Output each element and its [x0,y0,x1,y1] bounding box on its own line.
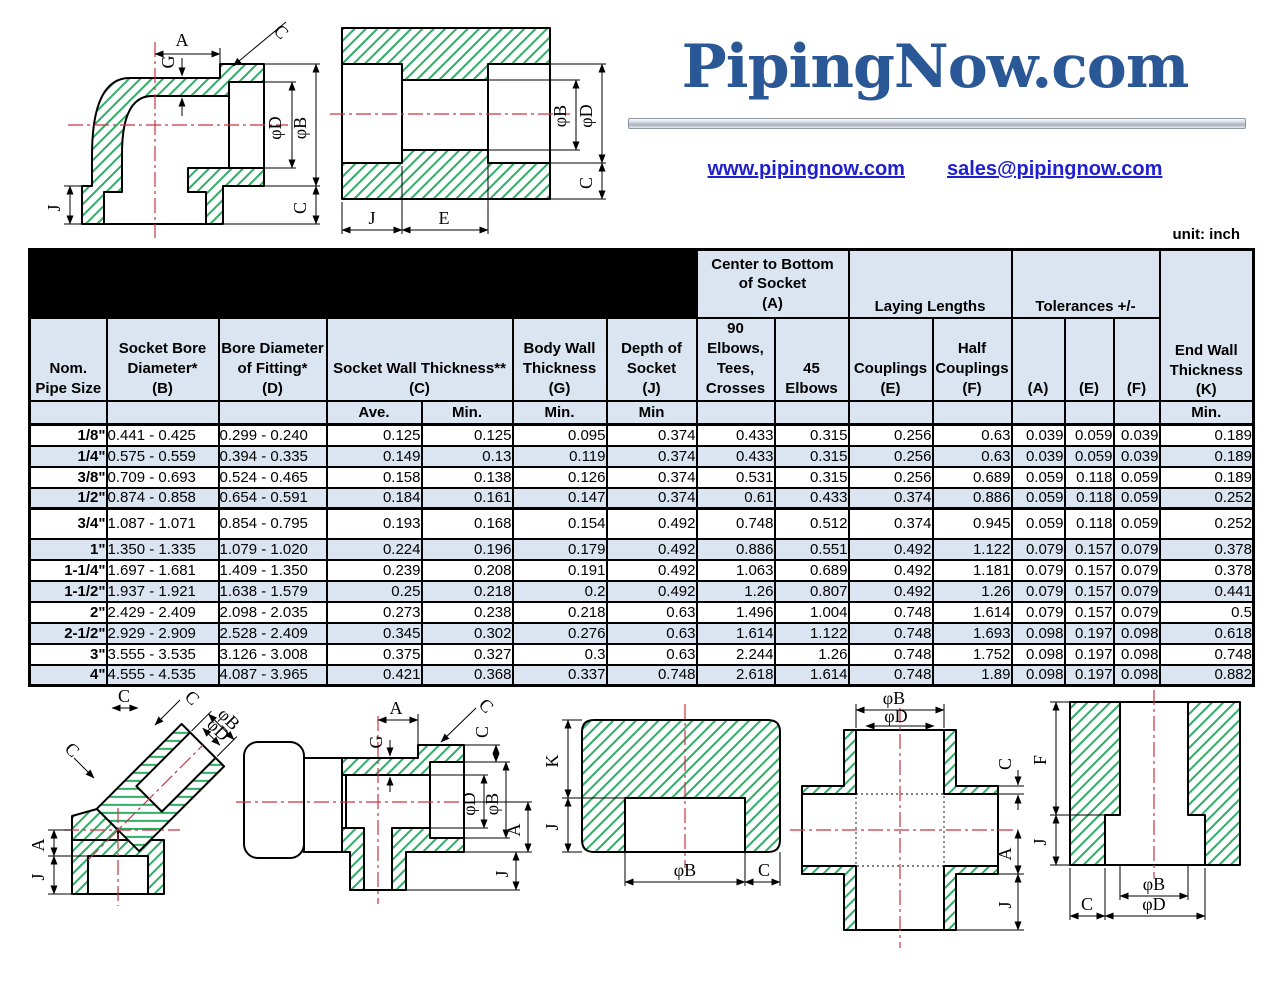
table-cell: 0.184 [327,488,422,509]
subheader-cell [1114,401,1160,425]
table-cell: 1.122 [775,623,849,644]
dim-label: C [118,690,130,706]
table-cell: 0.189 [1160,467,1254,488]
table-cell: 0.098 [1114,644,1160,665]
table-cell: 1.350 - 1.335 [107,539,219,560]
col-header-45-elbows: 45 Elbows [775,318,849,401]
col-header-end-wall-thickness: End Wall Thickness (K) [1160,250,1254,401]
table-cell: 0.433 [775,488,849,509]
table-cell: 0.059 [1114,488,1160,509]
group-header-center-to-bottom: Center to Bottom of Socket (A) [697,250,849,318]
dim-label: C [270,20,293,43]
table-cell: 0.61 [697,488,775,509]
dim-label: φB [674,860,696,880]
table-row: 2-1/2"2.929 - 2.9092.528 - 2.4090.3450.3… [30,623,1254,644]
table-cell: 0.059 [1114,509,1160,539]
table-cell: 0.13 [422,446,513,467]
table-cell: 0.374 [607,488,697,509]
table-row: 3/8"0.709 - 0.6930.524 - 0.4650.1580.138… [30,467,1254,488]
table-cell: 0.161 [422,488,513,509]
subheader-cell: Min [607,401,697,425]
table-cell: 0.079 [1012,602,1065,623]
group-header-laying-lengths: Laying Lengths [849,250,1012,318]
dim-label: φD [884,706,907,726]
table-cell: 0.512 [775,509,849,539]
col-header-couplings: Couplings (E) [849,318,933,401]
table-cell: 0.433 [697,446,775,467]
table-cell: 0.748 [607,665,697,686]
col-header-bore-diameter: Bore Diameter of Fitting* (D) [219,318,327,401]
dim-label: C [181,690,204,709]
table-cell: 0.079 [1012,539,1065,560]
table-cell: 0.492 [849,560,933,581]
table-cell: 0.189 [1160,446,1254,467]
table-cell: 0.157 [1065,602,1114,623]
table-cell: 0.421 [327,665,422,686]
table-title: 3000# SOCKET WELD FITTING DIMENSIONS STA… [30,250,697,318]
subheader-cell [1065,401,1114,425]
table-cell: 0.158 [327,467,422,488]
subheader-cell [1012,401,1065,425]
dim-label: C [995,758,1015,770]
col-header-tolerance-e: (E) [1065,318,1114,401]
table-cell: 0.315 [775,467,849,488]
table-cell: 0.492 [607,509,697,539]
col-header-body-wall-thickness: Body Wall Thickness (G) [513,318,607,401]
table-cell: 1.614 [697,623,775,644]
col-header-nom-pipe-size: Nom. Pipe Size [30,318,107,401]
table-cell: 0.193 [327,509,422,539]
table-cell: 0.441 [1160,581,1254,602]
table-cell: 1.26 [933,581,1012,602]
table-cell: 0.689 [933,467,1012,488]
table-cell: 0.689 [775,560,849,581]
dim-label: C [576,177,596,189]
table-cell: 0.5 [1160,602,1254,623]
table-cell: 0.138 [422,467,513,488]
table-cell: 2" [30,602,107,623]
table-cell: 0.252 [1160,488,1254,509]
table-row: 2"2.429 - 2.4092.098 - 2.0350.2730.2380.… [30,602,1254,623]
table-cell: 0.196 [422,539,513,560]
col-header-depth-of-socket: Depth of Socket (J) [607,318,697,401]
table-cell: 4" [30,665,107,686]
table-cell: 0.168 [422,509,513,539]
table-cell: 0.315 [775,446,849,467]
table-cell: 0.618 [1160,623,1254,644]
datasheet-page: A C G φD φB J C φB [0,0,1280,989]
table-cell: 0.125 [327,425,422,446]
table-cell: 0.218 [513,602,607,623]
table-cell: 0.039 [1114,425,1160,446]
dim-label: φB [550,105,570,127]
logo-pipingnow: PipingNow.com [620,32,1250,102]
table-cell: 4.555 - 4.535 [107,665,219,686]
drawing-90-elbow-section: A C G φD φB J C [30,6,330,244]
table-cell: 1-1/4" [30,560,107,581]
table-cell: 0.119 [513,446,607,467]
website-link[interactable]: www.pipingnow.com [708,158,905,180]
table-cell: 0.63 [933,425,1012,446]
table-cell: 0.157 [1065,560,1114,581]
dim-label: F [1030,755,1050,765]
table-cell: 0.854 - 0.795 [219,509,327,539]
dim-label: C [1081,894,1093,914]
table-cell: 1/4" [30,446,107,467]
subheader-cell: Min. [1160,401,1254,425]
table-cell: 0.374 [849,488,933,509]
table-cell: 0.059 [1065,446,1114,467]
table-cell: 2.429 - 2.409 [107,602,219,623]
table-cell: 1" [30,539,107,560]
dim-label: G [158,56,178,69]
table-cell: 0.433 [697,425,775,446]
table-cell: 0.551 [775,539,849,560]
subheader-cell [849,401,933,425]
dim-label: φD [1142,894,1165,914]
table-cell: 0.039 [1012,425,1065,446]
table-cell: 0.039 [1114,446,1160,467]
table-cell: 3/8" [30,467,107,488]
table-cell: 1.087 - 1.071 [107,509,219,539]
table-cell: 0.118 [1065,467,1114,488]
table-cell: 0.337 [513,665,607,686]
table-cell: 0.945 [933,509,1012,539]
table-cell: 0.394 - 0.335 [219,446,327,467]
table-cell: 0.079 [1114,581,1160,602]
group-header-tolerances: Tolerances +/- [1012,250,1160,318]
table-cell: 0.807 [775,581,849,602]
table-cell: 0.492 [607,539,697,560]
subheader-cell: Min. [513,401,607,425]
table-cell: 1.614 [933,602,1012,623]
table-cell: 0.157 [1065,581,1114,602]
table-cell: 0.886 [697,539,775,560]
table-cell: 0.098 [1012,623,1065,644]
table-cell: 1-1/2" [30,581,107,602]
dim-label: A [995,848,1015,861]
table-cell: 1.181 [933,560,1012,581]
table-cell: 1.079 - 1.020 [219,539,327,560]
dim-label: A [390,698,403,718]
table-cell: 3" [30,644,107,665]
table-cell: 0.327 [422,644,513,665]
table-cell: 0.375 [327,644,422,665]
subheader-cell [933,401,1012,425]
dim-label: G [366,736,386,749]
dim-label: φD [265,116,285,139]
dim-label: J [995,901,1015,908]
table-cell: 0.079 [1114,560,1160,581]
unit-label: unit: inch [1080,226,1240,243]
table-cell: 0.098 [1012,644,1065,665]
subheader-cell: Ave. [327,401,422,425]
table-cell: 3.555 - 3.535 [107,644,219,665]
table-row: 3/4"1.087 - 1.0710.854 - 0.7950.1930.168… [30,509,1254,539]
table-cell: 1.638 - 1.579 [219,581,327,602]
table-cell: 0.748 [697,509,775,539]
table-cell: 0.374 [607,446,697,467]
table-cell: 1.26 [775,644,849,665]
table-cell: 1.496 [697,602,775,623]
subheader-cell [775,401,849,425]
table-cell: 0.63 [607,602,697,623]
col-header-tolerance-f: (F) [1114,318,1160,401]
table-cell: 1.697 - 1.681 [107,560,219,581]
table-cell: 0.882 [1160,665,1254,686]
subheader-cell [107,401,219,425]
table-cell: 2-1/2" [30,623,107,644]
dim-label: φB [1143,874,1165,894]
table-cell: 0.224 [327,539,422,560]
subheader-cell [219,401,327,425]
table-cell: 0.191 [513,560,607,581]
table-cell: 0.315 [775,425,849,446]
table-cell: 1/8" [30,425,107,446]
dim-label: A [176,30,189,50]
table-cell: 0.149 [327,446,422,467]
drawing-half-coupling-section: F J φB φD C [1030,690,1265,985]
dim-label: C [475,694,498,717]
dim-label: J [368,208,375,228]
table-row: 4"4.555 - 4.5354.087 - 3.9650.4210.3680.… [30,665,1254,686]
dim-label: φB [482,793,502,815]
table-cell: 1.004 [775,602,849,623]
table-cell: 0.492 [607,560,697,581]
table-cell: 1.614 [775,665,849,686]
table-title-line1: 3000# SOCKET WELD FITTING DIMENSIONS [31,261,696,284]
table-cell: 0.378 [1160,539,1254,560]
table-cell: 2.098 - 2.035 [219,602,327,623]
subheader-row: Ave. Min. Min. Min Min. [30,401,1254,425]
table-cell: 0.256 [849,425,933,446]
table-cell: 0.524 - 0.465 [219,467,327,488]
dim-label: E [439,208,450,228]
table-cell: 0.492 [607,581,697,602]
table-cell: 0.147 [513,488,607,509]
table-cell: 0.374 [849,509,933,539]
table-cell: 0.079 [1114,539,1160,560]
dim-label: C [61,738,84,761]
drawing-cap-section: K J φB C [540,690,795,985]
subheader-cell: Min. [422,401,513,425]
table-cell: 0.118 [1065,509,1114,539]
table-cell: 2.929 - 2.909 [107,623,219,644]
table-cell: 0.118 [1065,488,1114,509]
table-cell: 1.89 [933,665,1012,686]
table-cell: 1.693 [933,623,1012,644]
table-cell: 0.059 [1012,509,1065,539]
dim-label: J [28,873,48,880]
table-cell: 0.575 - 0.559 [107,446,219,467]
table-cell: 0.874 - 0.858 [107,488,219,509]
dim-label: J [44,204,64,211]
table-cell: 0.886 [933,488,1012,509]
table-cell: 0.273 [327,602,422,623]
table-cell: 0.299 - 0.240 [219,425,327,446]
table-row: 1-1/2"1.937 - 1.9211.638 - 1.5790.250.21… [30,581,1254,602]
table-cell: 0.492 [849,539,933,560]
logo-divider-bar [628,118,1246,129]
table-cell: 0.059 [1114,467,1160,488]
table-cell: 0.374 [607,467,697,488]
dim-label: A [28,839,48,852]
col-header-socket-wall-thickness: Socket Wall Thickness** (C) [327,318,513,401]
table-cell: 0.197 [1065,623,1114,644]
subheader-cell [697,401,775,425]
table-cell: 1.409 - 1.350 [219,560,327,581]
table-cell: 0.492 [849,581,933,602]
table-cell: 0.079 [1012,560,1065,581]
table-cell: 0.197 [1065,644,1114,665]
table-cell: 0.345 [327,623,422,644]
table-cell: 0.218 [422,581,513,602]
table-cell: 0.126 [513,467,607,488]
table-cell: 0.302 [422,623,513,644]
table-row: 1-1/4"1.697 - 1.6811.409 - 1.3500.2390.2… [30,560,1254,581]
dimensions-table: 3000# SOCKET WELD FITTING DIMENSIONS STA… [28,248,1255,687]
table-cell: 2.244 [697,644,775,665]
table-title-line2: STAINLESS STEEL 304/304L, 316/316L A182 [31,284,696,307]
table-cell: 1.937 - 1.921 [107,581,219,602]
col-header-half-couplings: Half Couplings (F) [933,318,1012,401]
dim-label: A [504,824,524,837]
table-cell: 0.059 [1012,488,1065,509]
table-cell: 0.748 [849,644,933,665]
table-cell: 0.368 [422,665,513,686]
table-cell: 0.238 [422,602,513,623]
table-row: 3"3.555 - 3.5353.126 - 3.0080.3750.3270.… [30,644,1254,665]
drawing-cross-section: φB φD C A J [790,690,1030,985]
dim-label: J [492,870,512,877]
table-cell: 0.378 [1160,560,1254,581]
col-header-socket-bore: Socket Bore Diameter* (B) [107,318,219,401]
table-cell: 0.256 [849,467,933,488]
dim-label: C [290,202,310,214]
col-header-90-elbows: 90 Elbows, Tees, Crosses [697,318,775,401]
table-cell: 0.3 [513,644,607,665]
table-cell: 1.122 [933,539,1012,560]
table-cell: 0.179 [513,539,607,560]
table-cell: 0.197 [1065,665,1114,686]
table-cell: 2.618 [697,665,775,686]
table-cell: 0.239 [327,560,422,581]
table-cell: 0.748 [849,623,933,644]
table-cell: 1.063 [697,560,775,581]
table-cell: 3/4" [30,509,107,539]
table-row: 1/4"0.575 - 0.5590.394 - 0.3350.1490.130… [30,446,1254,467]
table-cell: 0.63 [607,623,697,644]
table-cell: 0.095 [513,425,607,446]
table-cell: 1.752 [933,644,1012,665]
email-link[interactable]: sales@pipingnow.com [947,158,1162,180]
table-cell: 0.079 [1114,602,1160,623]
table-cell: 1/2" [30,488,107,509]
table-cell: 2.528 - 2.409 [219,623,327,644]
table-cell: 0.098 [1114,665,1160,686]
table-cell: 0.2 [513,581,607,602]
dim-label: J [542,823,562,830]
dim-label: C [758,860,770,880]
table-cell: 0.059 [1012,467,1065,488]
table-row: 1/2"0.874 - 0.8580.654 - 0.5910.1840.161… [30,488,1254,509]
table-cell: 0.748 [1160,644,1254,665]
table-cell: 0.252 [1160,509,1254,539]
table-cell: 0.276 [513,623,607,644]
dim-label: K [542,755,562,768]
table-cell: 1.26 [697,581,775,602]
table-cell: 0.748 [849,602,933,623]
table-row: 1/8"0.441 - 0.4250.299 - 0.2400.1250.125… [30,425,1254,446]
table-cell: 0.63 [607,644,697,665]
drawing-tee-section: A G C C φD φB A J [232,690,542,985]
table-cell: 0.25 [327,581,422,602]
dim-label: J [1030,838,1050,845]
table-cell: 0.189 [1160,425,1254,446]
dim-label: C [472,726,492,738]
table-row: 1"1.350 - 1.3351.079 - 1.0200.2240.1960.… [30,539,1254,560]
dim-label: φD [576,104,596,127]
table-cell: 0.154 [513,509,607,539]
table-cell: 0.63 [933,446,1012,467]
table-cell: 0.531 [697,467,775,488]
table-cell: 0.709 - 0.693 [107,467,219,488]
table-cell: 0.208 [422,560,513,581]
subheader-cell [30,401,107,425]
table-cell: 4.087 - 3.965 [219,665,327,686]
table-cell: 0.039 [1012,446,1065,467]
table-cell: 0.256 [849,446,933,467]
table-cell: 0.157 [1065,539,1114,560]
contact-links: www.pipingnow.comsales@pipingnow.com [620,158,1250,181]
table-cell: 0.441 - 0.425 [107,425,219,446]
table-cell: 0.098 [1114,623,1160,644]
table-cell: 0.748 [849,665,933,686]
table-cell: 0.654 - 0.591 [219,488,327,509]
table-cell: 0.059 [1065,425,1114,446]
table-cell: 0.098 [1012,665,1065,686]
table-cell: 0.125 [422,425,513,446]
dim-label: φB [290,117,310,139]
drawing-coupling-section: φB φD C J E [330,6,640,244]
table-cell: 3.126 - 3.008 [219,644,327,665]
col-header-tolerance-a: (A) [1012,318,1065,401]
table-cell: 0.079 [1012,581,1065,602]
dim-label: φD [459,792,479,815]
table-cell: 0.374 [607,425,697,446]
